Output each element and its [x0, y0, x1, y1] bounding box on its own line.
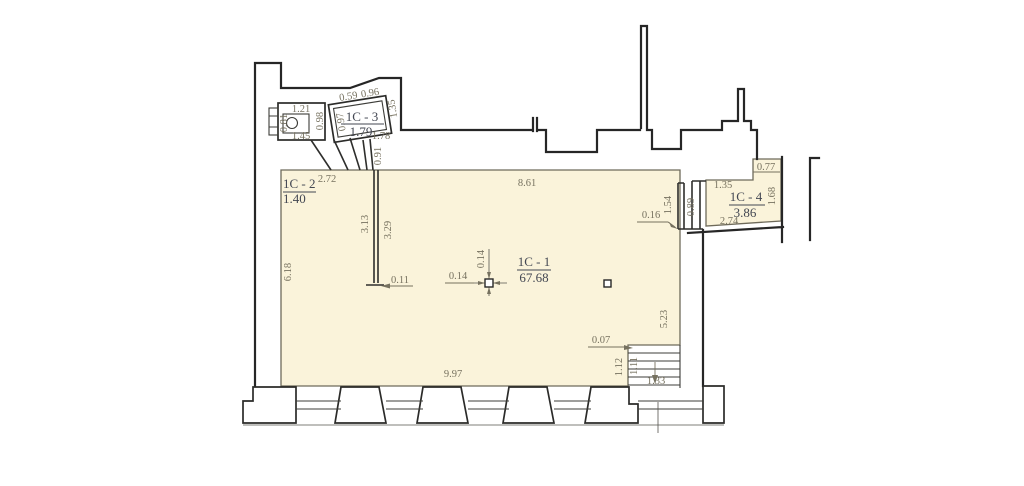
dim-shaft-width: 0.89 [686, 198, 697, 216]
dim-niche-offset: 0.16 [642, 210, 660, 221]
bottom-wall [243, 386, 724, 433]
dim-partition-right: 3.29 [383, 221, 394, 239]
annex-ledge-ticks [269, 116, 278, 127]
room-1c1-label: 1C - 1 [518, 254, 551, 269]
dim-c3-bottom: 1.78 [372, 131, 390, 142]
dim-annex-bottom: 1.45 [292, 131, 310, 142]
dim-c1-bottom: 9.97 [444, 369, 462, 380]
wall-pier [417, 387, 468, 423]
wall-pilaster-square [604, 280, 611, 287]
connector-wall-lines [311, 138, 373, 170]
wall-pier [243, 387, 296, 423]
dim-partition-left: 3.13 [360, 215, 371, 233]
column-square [485, 279, 493, 287]
room-1c4-label: 1C - 4 [730, 189, 763, 204]
dim-c1-top: 8.61 [518, 178, 536, 189]
room-1c1-outline [281, 170, 680, 386]
dim-stair-left: 1.12 [614, 358, 625, 376]
annex-ledge [269, 108, 278, 135]
dim-annex-right: 0.98 [315, 112, 326, 130]
floor-plan-svg: 0.97 0.59 0.96 1.35 1C - 3 1.79 1.78 0.9… [0, 0, 1024, 486]
room-1c3-label: 1C - 3 [346, 109, 379, 124]
room-1c3-area: 1.79 [350, 124, 373, 139]
connector-walls [311, 138, 373, 170]
dim-c3-passage: 0.91 [373, 147, 384, 165]
dim-column-h: 0.14 [476, 249, 487, 268]
dim-annex-left: 0.81 [279, 114, 290, 132]
dim-c1-right: 5.23 [659, 310, 670, 328]
floor-plan-page: 0.97 0.59 0.96 1.35 1C - 3 1.79 1.78 0.9… [0, 0, 1024, 486]
dim-c2-width: 2.72 [318, 174, 336, 185]
dim-c4-right: 1.68 [767, 187, 778, 205]
dim-partition-end: 0.11 [391, 275, 409, 286]
room-1c2-area: 1.40 [283, 191, 306, 206]
dim-annex-top: 1.21 [292, 104, 310, 115]
dim-c1-left: 6.18 [283, 263, 294, 281]
dim-column-w: 0.14 [449, 271, 468, 282]
dim-stair-wall: 0.07 [592, 335, 610, 346]
dim-c4-bottom: 2.74 [720, 216, 739, 227]
dim-c4-notch: 0.77 [757, 162, 775, 173]
room-1c1-area: 67.68 [519, 270, 548, 285]
wall-pier [585, 387, 638, 423]
room-1c2-label: 1C - 2 [283, 176, 316, 191]
wall-pier [503, 387, 554, 423]
dim-stair-inner: 1.11 [629, 357, 640, 375]
dim-c3-right: 1.35 [386, 99, 400, 119]
wall-pier [703, 386, 724, 423]
wall-pier [335, 387, 386, 423]
dim-niche-height: 1.54 [663, 195, 674, 214]
